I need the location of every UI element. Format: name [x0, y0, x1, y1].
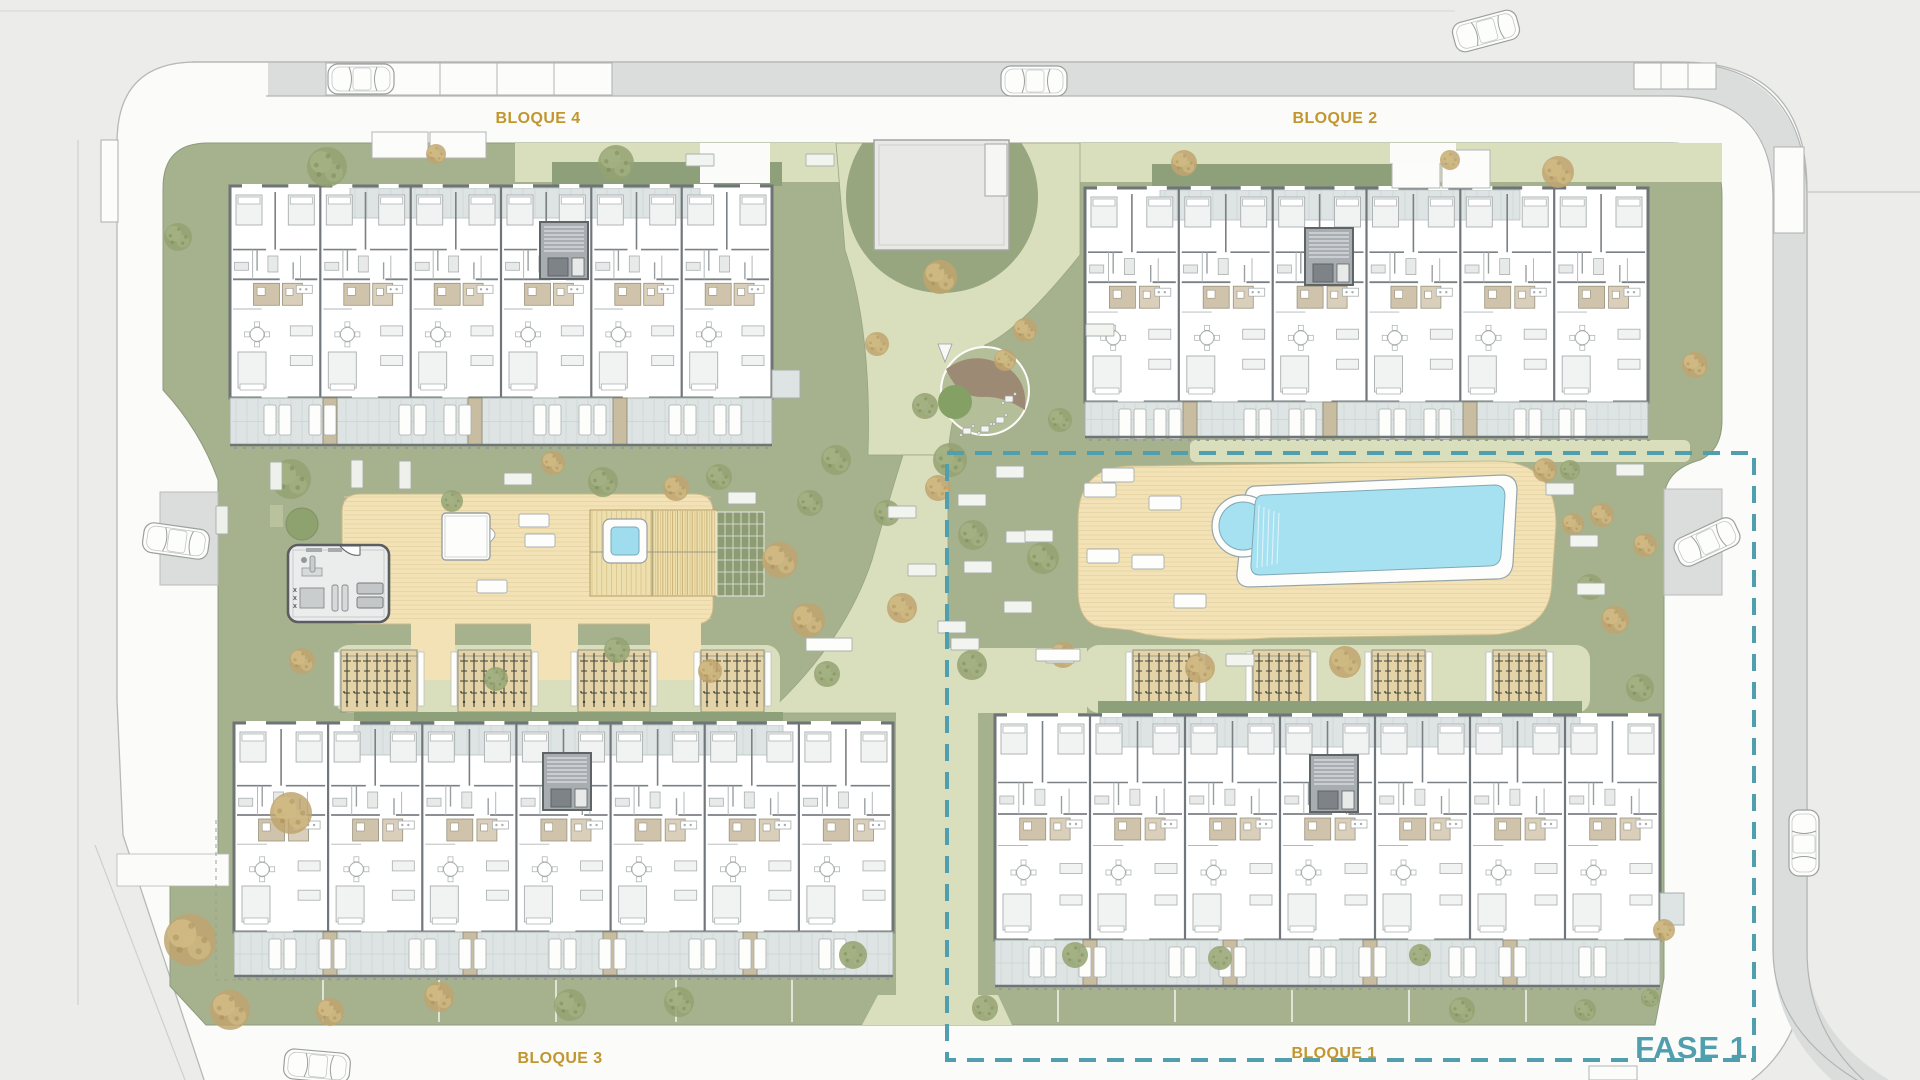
svg-text:x: x	[293, 603, 297, 610]
svg-text:x: x	[293, 587, 297, 594]
svg-text:FASE 1: FASE 1	[1635, 1030, 1748, 1065]
svg-text:BLOQUE 1: BLOQUE 1	[1292, 1045, 1377, 1062]
svg-text:BLOQUE 4: BLOQUE 4	[496, 110, 581, 127]
svg-text:x: x	[293, 595, 297, 602]
svg-text:BLOQUE 2: BLOQUE 2	[1293, 110, 1378, 127]
svg-text:BLOQUE 3: BLOQUE 3	[518, 1050, 603, 1067]
